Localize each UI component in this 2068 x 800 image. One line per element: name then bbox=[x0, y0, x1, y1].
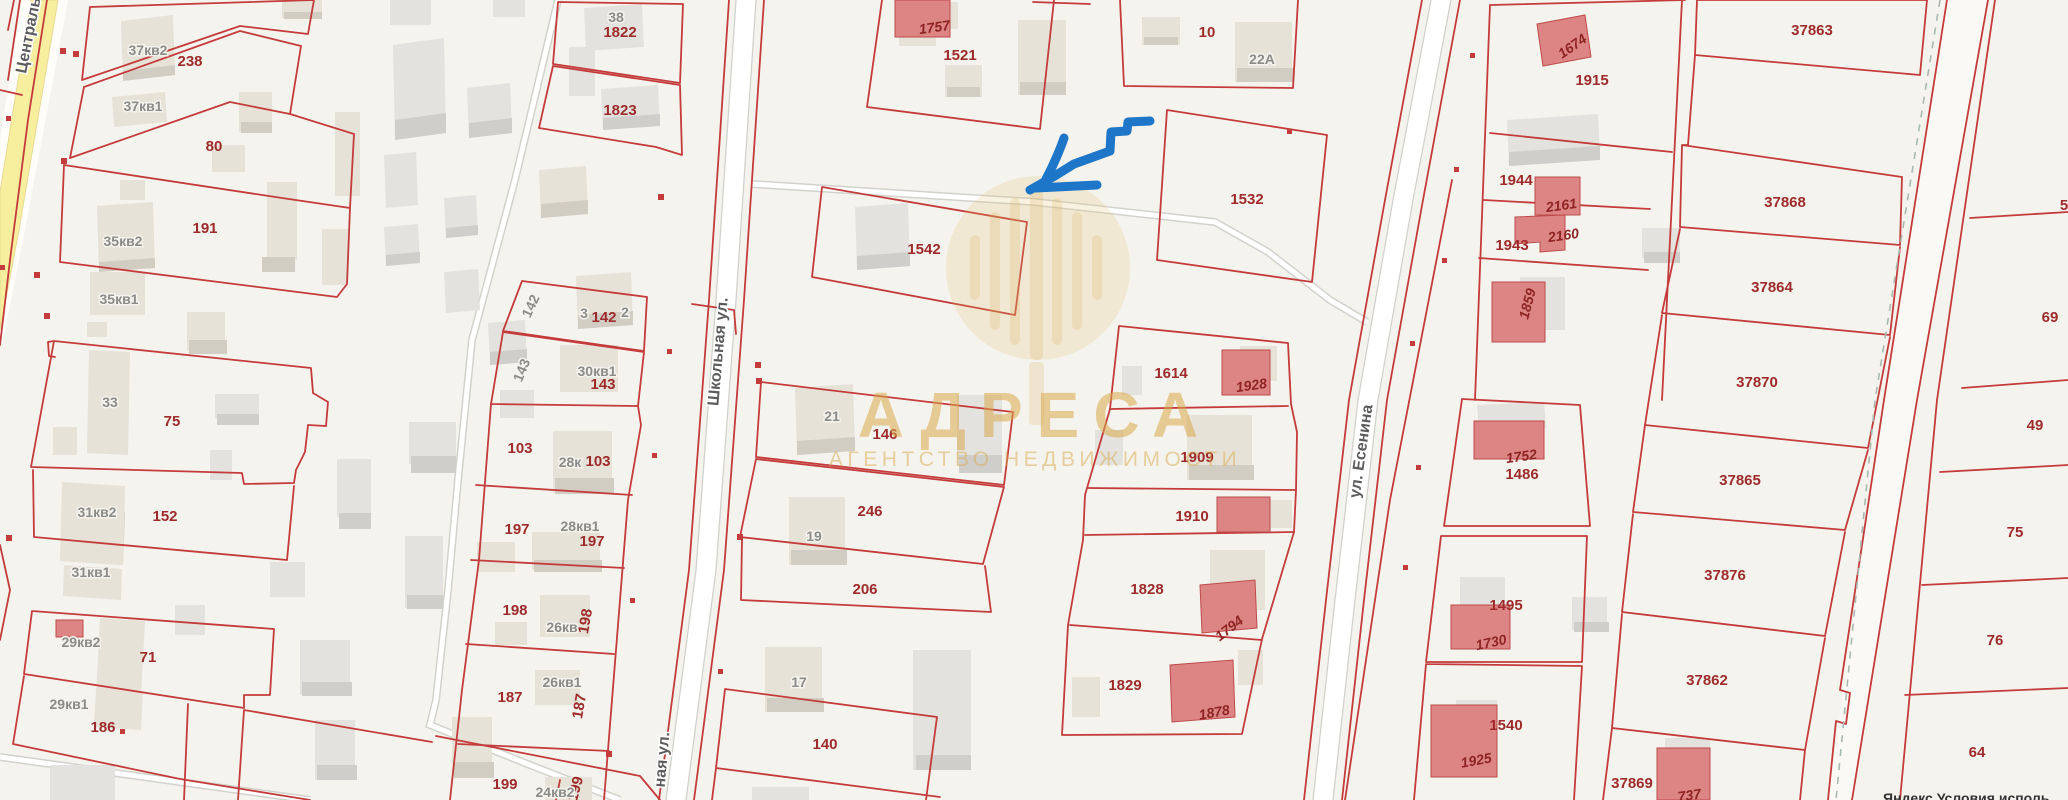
svg-text:21: 21 bbox=[824, 408, 840, 424]
svg-text:103: 103 bbox=[507, 440, 532, 457]
svg-text:737: 737 bbox=[1677, 785, 1704, 800]
svg-text:103: 103 bbox=[585, 453, 610, 470]
svg-text:37865: 37865 bbox=[1719, 472, 1761, 489]
svg-text:37кв1: 37кв1 bbox=[124, 98, 163, 114]
svg-text:37870: 37870 bbox=[1736, 374, 1778, 391]
svg-text:Яндекс Условия исполь: Яндекс Условия исполь bbox=[1883, 790, 2050, 800]
svg-text:1823: 1823 bbox=[603, 102, 636, 119]
svg-text:1829: 1829 bbox=[1108, 677, 1141, 694]
svg-text:76: 76 bbox=[1987, 632, 2004, 649]
svg-text:31кв1: 31кв1 bbox=[72, 564, 111, 580]
svg-text:19: 19 bbox=[806, 528, 822, 544]
svg-text:17: 17 bbox=[791, 674, 807, 690]
svg-text:238: 238 bbox=[177, 53, 202, 70]
svg-text:64: 64 bbox=[1969, 744, 1986, 761]
svg-text:1822: 1822 bbox=[603, 24, 636, 41]
svg-text:38: 38 bbox=[608, 9, 624, 25]
svg-text:142: 142 bbox=[591, 309, 616, 326]
svg-text:37864: 37864 bbox=[1751, 279, 1793, 296]
svg-text:1486: 1486 bbox=[1505, 466, 1538, 483]
svg-text:35кв2: 35кв2 bbox=[104, 233, 143, 249]
svg-text:30кв1: 30кв1 bbox=[578, 363, 617, 379]
svg-text:197: 197 bbox=[579, 533, 604, 550]
svg-text:37862: 37862 bbox=[1686, 672, 1728, 689]
svg-text:1521: 1521 bbox=[943, 47, 976, 64]
svg-text:1540: 1540 bbox=[1489, 717, 1522, 734]
svg-text:22А: 22А bbox=[1249, 51, 1275, 67]
svg-text:2: 2 bbox=[621, 304, 629, 320]
svg-text:1542: 1542 bbox=[907, 241, 940, 258]
svg-text:АДРЕСА: АДРЕСА bbox=[858, 379, 1212, 451]
svg-text:26кв: 26кв bbox=[546, 619, 578, 635]
svg-text:206: 206 bbox=[852, 581, 877, 598]
svg-text:75: 75 bbox=[164, 413, 181, 430]
svg-text:28к: 28к bbox=[559, 454, 583, 470]
svg-text:31кв2: 31кв2 bbox=[78, 504, 117, 520]
svg-text:37869: 37869 bbox=[1611, 775, 1653, 792]
svg-text:26кв1: 26кв1 bbox=[543, 674, 582, 690]
svg-text:29кв2: 29кв2 bbox=[62, 634, 101, 650]
svg-text:187: 187 bbox=[497, 689, 522, 706]
svg-text:1828: 1828 bbox=[1130, 581, 1163, 598]
svg-text:80: 80 bbox=[206, 138, 223, 155]
svg-text:5: 5 bbox=[2060, 197, 2068, 214]
svg-text:37кв2: 37кв2 bbox=[129, 42, 168, 58]
svg-text:49: 49 bbox=[2027, 417, 2044, 434]
svg-text:37863: 37863 bbox=[1791, 22, 1833, 39]
svg-text:198: 198 bbox=[502, 602, 527, 619]
svg-text:37876: 37876 bbox=[1704, 567, 1746, 584]
svg-text:1915: 1915 bbox=[1575, 72, 1608, 89]
svg-text:69: 69 bbox=[2042, 309, 2059, 326]
svg-text:АГЕНТСТВО НЕДВИЖИМОСТИ: АГЕНТСТВО НЕДВИЖИМОСТИ bbox=[829, 448, 1241, 471]
svg-text:75: 75 bbox=[2007, 524, 2024, 541]
svg-text:1944: 1944 bbox=[1499, 172, 1533, 189]
svg-text:191: 191 bbox=[192, 220, 217, 237]
svg-text:33: 33 bbox=[102, 394, 118, 410]
svg-text:37868: 37868 bbox=[1764, 194, 1806, 211]
svg-text:35кв1: 35кв1 bbox=[100, 291, 139, 307]
svg-text:152: 152 bbox=[152, 508, 177, 525]
svg-text:1532: 1532 bbox=[1230, 191, 1263, 208]
svg-text:197: 197 bbox=[504, 521, 529, 538]
svg-text:71: 71 bbox=[140, 649, 157, 666]
svg-text:246: 246 bbox=[857, 503, 882, 520]
svg-text:1910: 1910 bbox=[1175, 508, 1208, 525]
svg-text:29кв1: 29кв1 bbox=[50, 696, 89, 712]
svg-text:10: 10 bbox=[1199, 24, 1216, 41]
svg-text:140: 140 bbox=[812, 736, 837, 753]
svg-text:186: 186 bbox=[90, 719, 115, 736]
svg-text:3: 3 bbox=[580, 305, 588, 321]
svg-text:24кв2: 24кв2 bbox=[536, 784, 575, 800]
svg-text:199: 199 bbox=[492, 776, 517, 793]
svg-text:1943: 1943 bbox=[1495, 237, 1528, 254]
svg-text:1495: 1495 bbox=[1489, 597, 1522, 614]
svg-text:28кв1: 28кв1 bbox=[561, 518, 600, 534]
